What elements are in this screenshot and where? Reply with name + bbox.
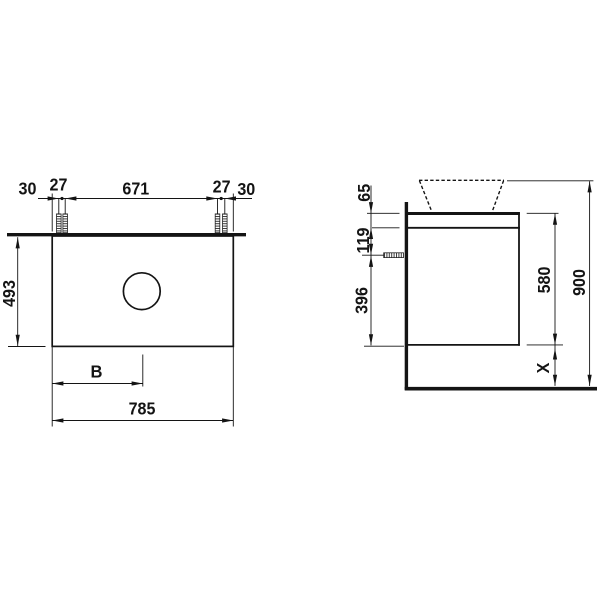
technical-drawing-page: 30 27 671 27 30 493 B 785 bbox=[0, 0, 600, 600]
washbasin-outline bbox=[419, 180, 504, 211]
top-view-dim-arrows bbox=[16, 196, 236, 422]
dim-label-580: 580 bbox=[534, 267, 554, 294]
dim-label-30-right: 30 bbox=[237, 179, 255, 199]
dim-label-65: 65 bbox=[354, 184, 374, 202]
side-view-dimension-lines bbox=[371, 181, 590, 386]
dim-label-b: B bbox=[91, 361, 103, 382]
top-view: 30 27 671 27 30 493 B 785 bbox=[0, 175, 255, 427]
top-view-dim-labels: 30 27 671 27 30 493 B 785 bbox=[0, 175, 255, 419]
dim-label-900: 900 bbox=[570, 269, 590, 296]
dim-label-30-left: 30 bbox=[19, 179, 37, 199]
dim-label-27-left: 27 bbox=[50, 175, 68, 195]
mounting-screw-icon bbox=[63, 214, 68, 233]
mounting-screw-icon bbox=[223, 214, 228, 233]
vanity-dimension-drawing: 30 27 671 27 30 493 B 785 bbox=[0, 0, 600, 600]
top-view-extension-lines bbox=[8, 194, 233, 427]
mounting-screw-icons-top bbox=[57, 214, 228, 233]
basin-hole-circle bbox=[123, 273, 160, 310]
mounting-screw-icon bbox=[384, 253, 404, 258]
mounting-screw-icon bbox=[215, 214, 220, 233]
mounting-screw-icon bbox=[57, 214, 62, 233]
side-view-extension-lines bbox=[362, 181, 593, 346]
dim-label-671: 671 bbox=[122, 179, 149, 199]
cabinet-outline bbox=[408, 212, 520, 345]
dim-label-396: 396 bbox=[352, 287, 372, 314]
dim-label-785: 785 bbox=[129, 399, 156, 419]
countertop-outline bbox=[52, 236, 233, 346]
side-view: 65 119 396 580 X 900 bbox=[352, 180, 597, 389]
dim-label-x: X bbox=[533, 362, 553, 373]
dim-label-493: 493 bbox=[0, 280, 19, 307]
dim-label-27-right: 27 bbox=[213, 177, 231, 197]
dim-label-119: 119 bbox=[353, 228, 373, 254]
side-view-dim-arrows bbox=[369, 181, 592, 386]
